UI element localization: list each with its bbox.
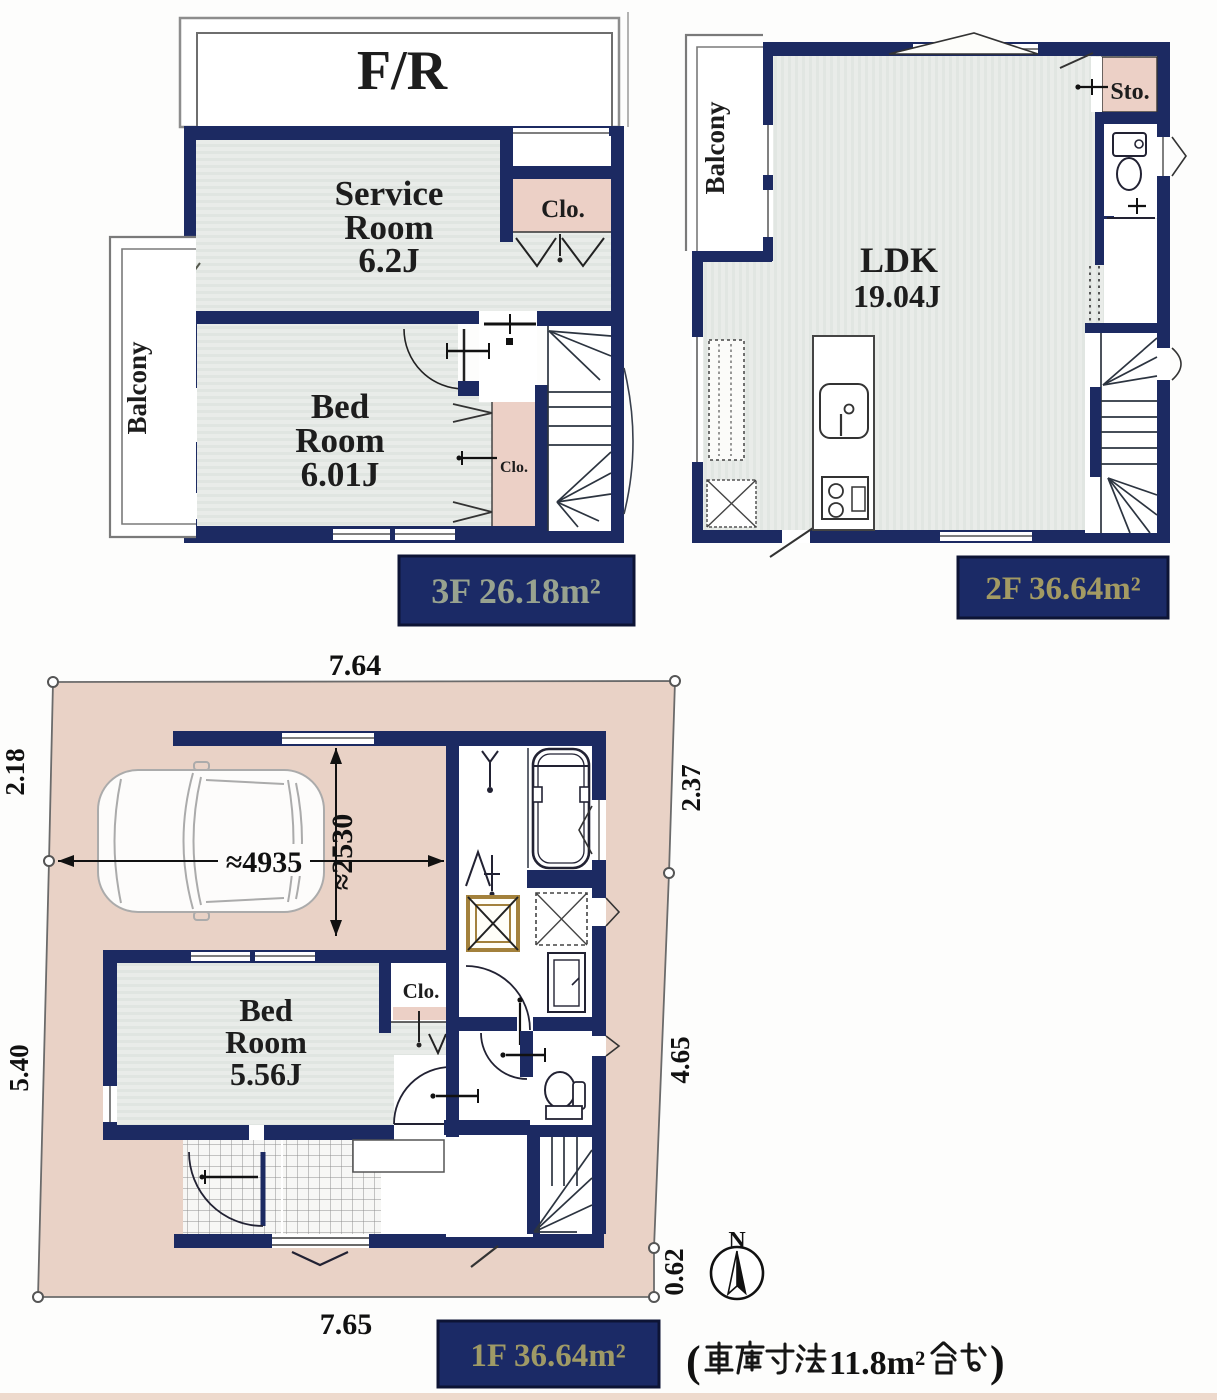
- svg-text:6.01J: 6.01J: [301, 455, 380, 494]
- svg-text:Clo.: Clo.: [403, 979, 440, 1003]
- svg-text:Balcony: Balcony: [700, 101, 730, 195]
- svg-text:7.65: 7.65: [320, 1308, 373, 1341]
- svg-text:Bed: Bed: [239, 992, 293, 1028]
- svg-text:5.40: 5.40: [4, 1044, 34, 1091]
- svg-text:(: (: [686, 1337, 701, 1386]
- svg-text:6.2J: 6.2J: [358, 241, 419, 280]
- svg-text:1F 36.64m²: 1F 36.64m²: [470, 1338, 625, 1374]
- svg-text:Room: Room: [225, 1024, 307, 1060]
- svg-text:LDK: LDK: [860, 240, 938, 280]
- svg-text:19.04J: 19.04J: [853, 278, 941, 314]
- svg-text:F/R: F/R: [357, 40, 448, 102]
- svg-text:Clo.: Clo.: [500, 459, 528, 476]
- svg-text:): ): [990, 1337, 1005, 1386]
- svg-text:≈4935: ≈4935: [226, 846, 302, 879]
- svg-text:4.65: 4.65: [665, 1036, 695, 1083]
- svg-text:11.8m²: 11.8m²: [829, 1345, 925, 1382]
- svg-text:Balcony: Balcony: [122, 341, 152, 435]
- svg-text:≈2530: ≈2530: [326, 814, 359, 890]
- svg-text:0.62: 0.62: [659, 1248, 689, 1295]
- svg-text:2.37: 2.37: [676, 764, 706, 811]
- svg-text:3F 26.18m²: 3F 26.18m²: [431, 571, 600, 611]
- svg-text:2F 36.64m²: 2F 36.64m²: [985, 571, 1140, 607]
- svg-text:5.56J: 5.56J: [230, 1056, 302, 1092]
- svg-text:N: N: [728, 1228, 746, 1254]
- svg-text:Clo.: Clo.: [541, 196, 585, 223]
- svg-text:2.18: 2.18: [0, 748, 30, 795]
- svg-text:7.64: 7.64: [329, 649, 382, 682]
- svg-text:Sto.: Sto.: [1110, 79, 1149, 105]
